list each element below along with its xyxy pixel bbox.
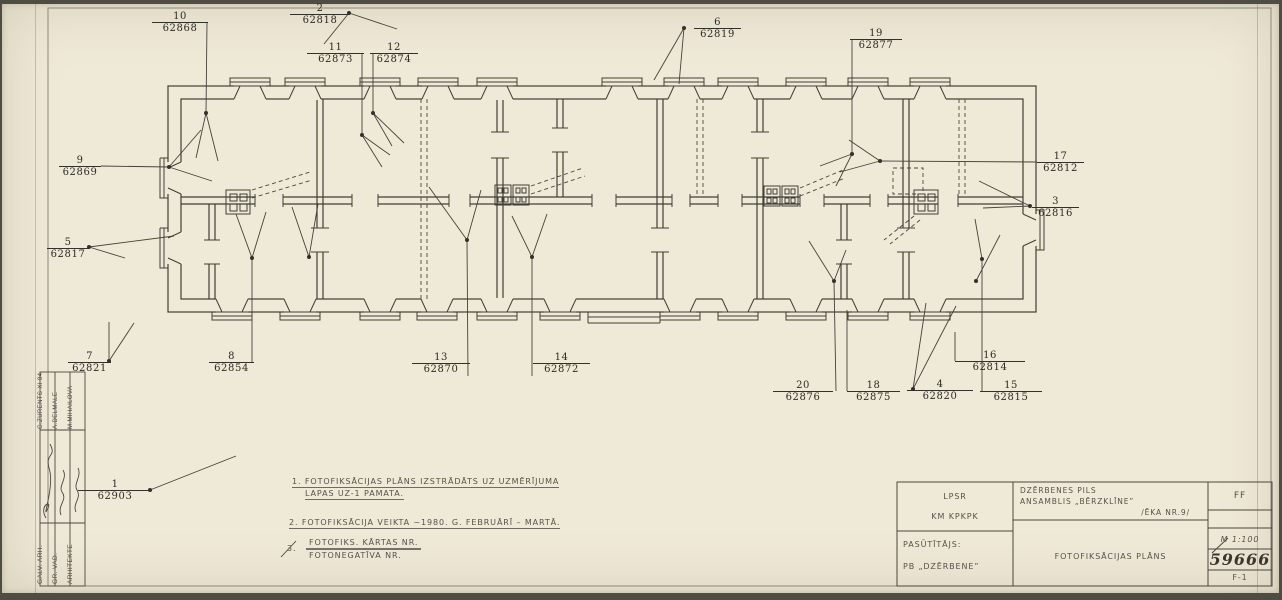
- camera-point-dot-14: [530, 255, 534, 259]
- camera-point-dot-9: [167, 165, 171, 169]
- signature-scribble: [60, 470, 64, 515]
- photo-point-label-9: 962869: [59, 166, 101, 180]
- leader-line-3: [979, 181, 1030, 206]
- leader-line-10: [206, 113, 218, 161]
- photo-negative-number: 62854: [209, 363, 254, 375]
- photo-negative-number: 62818: [290, 15, 350, 27]
- sheet-code: F-1: [1208, 573, 1272, 582]
- note-line-1: 1. FOTOFIKSĀCIJAS PLĀNS IZSTRĀDĀTS UZ UZ…: [292, 477, 559, 486]
- signature-role-1: GALV. ARH.: [37, 545, 44, 584]
- photo-negative-number: 62872: [533, 364, 590, 376]
- photo-order-number: 4: [907, 380, 973, 390]
- photo-order-number: 19: [850, 29, 902, 39]
- leader-line-9: [101, 166, 169, 167]
- leader-line-6: [654, 28, 684, 80]
- leader-line-11: [362, 135, 382, 167]
- photo-order-number: 1: [78, 480, 152, 490]
- signature-name-1: G.ZURENTS XI 84: [38, 373, 44, 429]
- camera-point-dot-20: [832, 279, 836, 283]
- photo-negative-number: 62820: [907, 391, 973, 403]
- camera-point-dot-16: [980, 257, 984, 261]
- org-name-line1: LPSR: [897, 492, 1013, 501]
- photo-point-label-5: 562817: [47, 248, 89, 262]
- leader-line-12: [373, 113, 392, 146]
- camera-point-dot-17: [878, 159, 882, 163]
- project-title-line2: ANSAMBLIS „BĒRZKLĪNE”: [1020, 497, 1134, 506]
- photo-order-number: 2: [290, 4, 350, 14]
- photo-negative-number: 62877: [850, 40, 902, 52]
- leader-line-6: [679, 28, 684, 84]
- photo-order-number: 6: [694, 18, 741, 28]
- drawing-stage: 1629032628183628164628205628176628197628…: [0, 0, 1282, 600]
- photo-point-label-3: 362816: [1032, 207, 1079, 221]
- camera-point-dot-19: [850, 152, 854, 156]
- photo-order-number: 7: [68, 352, 111, 362]
- client-name: PB „DZĒRBENE”: [903, 562, 979, 571]
- photo-negative-number: 62812: [1037, 163, 1084, 175]
- photo-order-number: 13: [412, 353, 470, 363]
- photo-order-number: 8: [209, 352, 254, 362]
- photo-negative-number: 62874: [370, 54, 418, 66]
- signature-name-3: M.MIHAILOVA: [68, 386, 74, 429]
- camera-point-dot-10: [204, 111, 208, 115]
- leader-line-14: [512, 216, 532, 257]
- camera-point-dot-12: [371, 111, 375, 115]
- leader-line-8: [252, 212, 266, 258]
- photo-point-label-14: 1462872: [533, 363, 590, 377]
- photo-point-label-15: 1562815: [980, 391, 1042, 405]
- fraction-top: FOTOFIKS. KĀRTAS NR.: [306, 538, 421, 548]
- photo-point-label-6: 662819: [694, 28, 741, 42]
- leader-line-20: [809, 241, 834, 281]
- leader-line-13: [429, 187, 467, 240]
- camera-point-dot-11: [360, 133, 364, 137]
- project-title-line3: /ĒKA NR.9/: [1020, 508, 1190, 517]
- camera-point-dot-13: [465, 238, 469, 242]
- leader-line-17: [849, 140, 880, 161]
- leader-line-7: [109, 323, 134, 361]
- photo-order-number: 17: [1037, 152, 1084, 162]
- photo-negative-number: 62816: [1032, 208, 1079, 220]
- leader-line-5: [89, 236, 174, 247]
- photo-order-number: 3: [1032, 197, 1079, 207]
- leader-line-12: [373, 113, 404, 143]
- photo-point-label-20: 2062876: [773, 391, 833, 405]
- photo-point-label-18: 1862875: [847, 391, 900, 405]
- signature-name-2: A.DELMALE: [53, 392, 59, 429]
- drawing-title: FOTOFIKSĀCIJAS PLĀNS: [1013, 552, 1208, 561]
- photo-point-label-16: 1662814: [955, 361, 1025, 375]
- photo-negative-number: 62814: [955, 362, 1025, 374]
- leader-line-11: [362, 135, 390, 155]
- photo-point-label-7: 762821: [68, 362, 111, 376]
- photo-order-number: 18: [847, 381, 900, 391]
- photo-point-label-2: 262818: [290, 14, 350, 28]
- leader-line-10: [196, 113, 206, 158]
- photo-order-number: 5: [47, 238, 89, 248]
- photo-point-label-8: 862854: [209, 362, 254, 376]
- leader-line-8: [236, 214, 252, 258]
- photo-point-label-10: 1062868: [152, 22, 208, 36]
- photo-negative-number: 62875: [847, 392, 900, 404]
- leader-line-5: [89, 247, 125, 258]
- photo-negative-number: 62870: [412, 364, 470, 376]
- photo-negative-number: 62876: [773, 392, 833, 404]
- photo-point-label-1: 162903: [78, 490, 152, 504]
- photo-negative-number: 62817: [47, 249, 89, 261]
- photo-order-number: 20: [773, 381, 833, 391]
- client-label: PASŪTĪTĀJS:: [903, 540, 961, 549]
- signature-strip-grid: [40, 372, 85, 586]
- camera-point-dot-6: [682, 26, 686, 30]
- photo-negative-number: 62903: [78, 491, 152, 503]
- scale-value: M 1:100: [1208, 535, 1272, 544]
- photo-negative-number: 62815: [980, 392, 1042, 404]
- note-line-2: 2. FOTOFIKSĀCIJA VEIKTA ~1980. G. FEBRUĀ…: [289, 518, 560, 527]
- photo-order-number: 9: [59, 156, 101, 166]
- photo-point-label-13: 1362870: [412, 363, 470, 377]
- stage-code: FF: [1208, 491, 1272, 501]
- photo-point-label-17: 1762812: [1037, 162, 1084, 176]
- photo-order-number: 15: [980, 381, 1042, 391]
- stove-symbols: [226, 185, 938, 214]
- leader-line-14: [532, 214, 547, 257]
- drawing-number: 59666: [1208, 550, 1272, 569]
- photo-order-number: 16: [955, 351, 1025, 361]
- leader-line-2: [349, 13, 397, 29]
- signature-role-2: GR. VAD.: [52, 553, 59, 584]
- note-line-3-number: 3.: [287, 544, 296, 553]
- photo-negative-number: 62868: [152, 23, 208, 35]
- project-title-line1: DZĒRBENES PILS: [1020, 486, 1097, 495]
- camera-point-dot-8: [250, 256, 254, 260]
- fraction-bottom: FOTONEGATĪVA NR.: [306, 548, 421, 560]
- photo-point-label-4: 462820: [907, 390, 973, 404]
- photo-order-number: 14: [533, 353, 590, 363]
- leader-line-20: [834, 281, 836, 391]
- signature-role-3: ARHITEKTE: [67, 544, 74, 584]
- org-name-line2: KM KPKPK: [897, 512, 1013, 521]
- note-line-1b: LAPAS UZ-1 PAMATA.: [305, 489, 404, 498]
- leader-line-9: [169, 130, 201, 167]
- note-line-3-fraction: FOTOFIKS. KĀRTAS NR. FOTONEGATĪVA NR.: [306, 538, 421, 560]
- photo-point-label-11: 1162873: [307, 53, 364, 67]
- leader-line-16: [975, 219, 982, 259]
- photo-point-label-12: 1262874: [370, 53, 418, 67]
- photo-negative-number: 62821: [68, 363, 111, 375]
- photo-negative-number: 62873: [307, 54, 364, 66]
- photo-negative-number: 62819: [694, 29, 741, 41]
- leader-line-1: [150, 456, 236, 490]
- photo-order-number: 10: [152, 12, 208, 22]
- wall-openings: [167, 85, 1037, 313]
- photo-order-number: 11: [307, 43, 364, 53]
- photo-point-label-19: 1962877: [850, 39, 902, 53]
- photo-order-number: 12: [370, 43, 418, 53]
- photo-negative-number: 62869: [59, 167, 101, 179]
